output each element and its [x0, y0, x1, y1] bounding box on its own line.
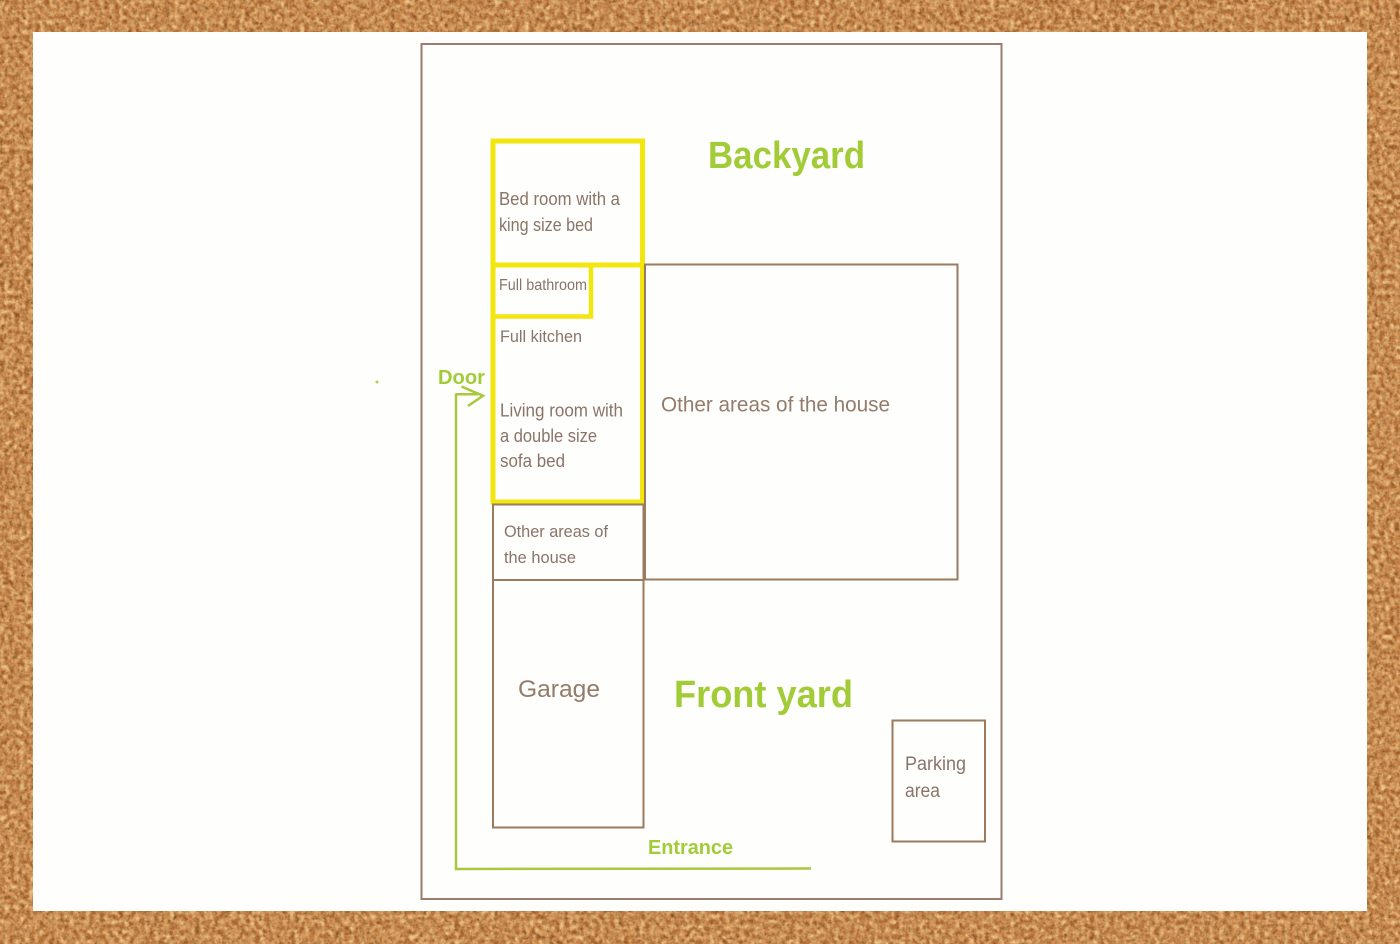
svg-text:Other areas of: Other areas of	[504, 522, 608, 541]
svg-text:Full bathroom: Full bathroom	[499, 277, 587, 294]
svg-text:king size bed: king size bed	[499, 215, 593, 235]
svg-text:the house: the house	[504, 548, 576, 567]
svg-text:Bed room with a: Bed room with a	[499, 189, 621, 209]
svg-text:Living room with: Living room with	[500, 401, 623, 421]
svg-text:a double size: a double size	[500, 426, 597, 446]
svg-text:Other areas of the house: Other areas of the house	[661, 394, 890, 417]
svg-text:area: area	[905, 781, 940, 802]
svg-text:Parking: Parking	[905, 754, 966, 775]
svg-text:Door: Door	[438, 367, 485, 389]
svg-text:Garage: Garage	[518, 676, 600, 703]
svg-text:Entrance: Entrance	[648, 837, 733, 859]
svg-text:Full kitchen: Full kitchen	[500, 327, 582, 346]
svg-text:Backyard: Backyard	[708, 135, 865, 177]
svg-text:sofa bed: sofa bed	[500, 451, 565, 471]
svg-text:Front yard: Front yard	[674, 674, 853, 716]
